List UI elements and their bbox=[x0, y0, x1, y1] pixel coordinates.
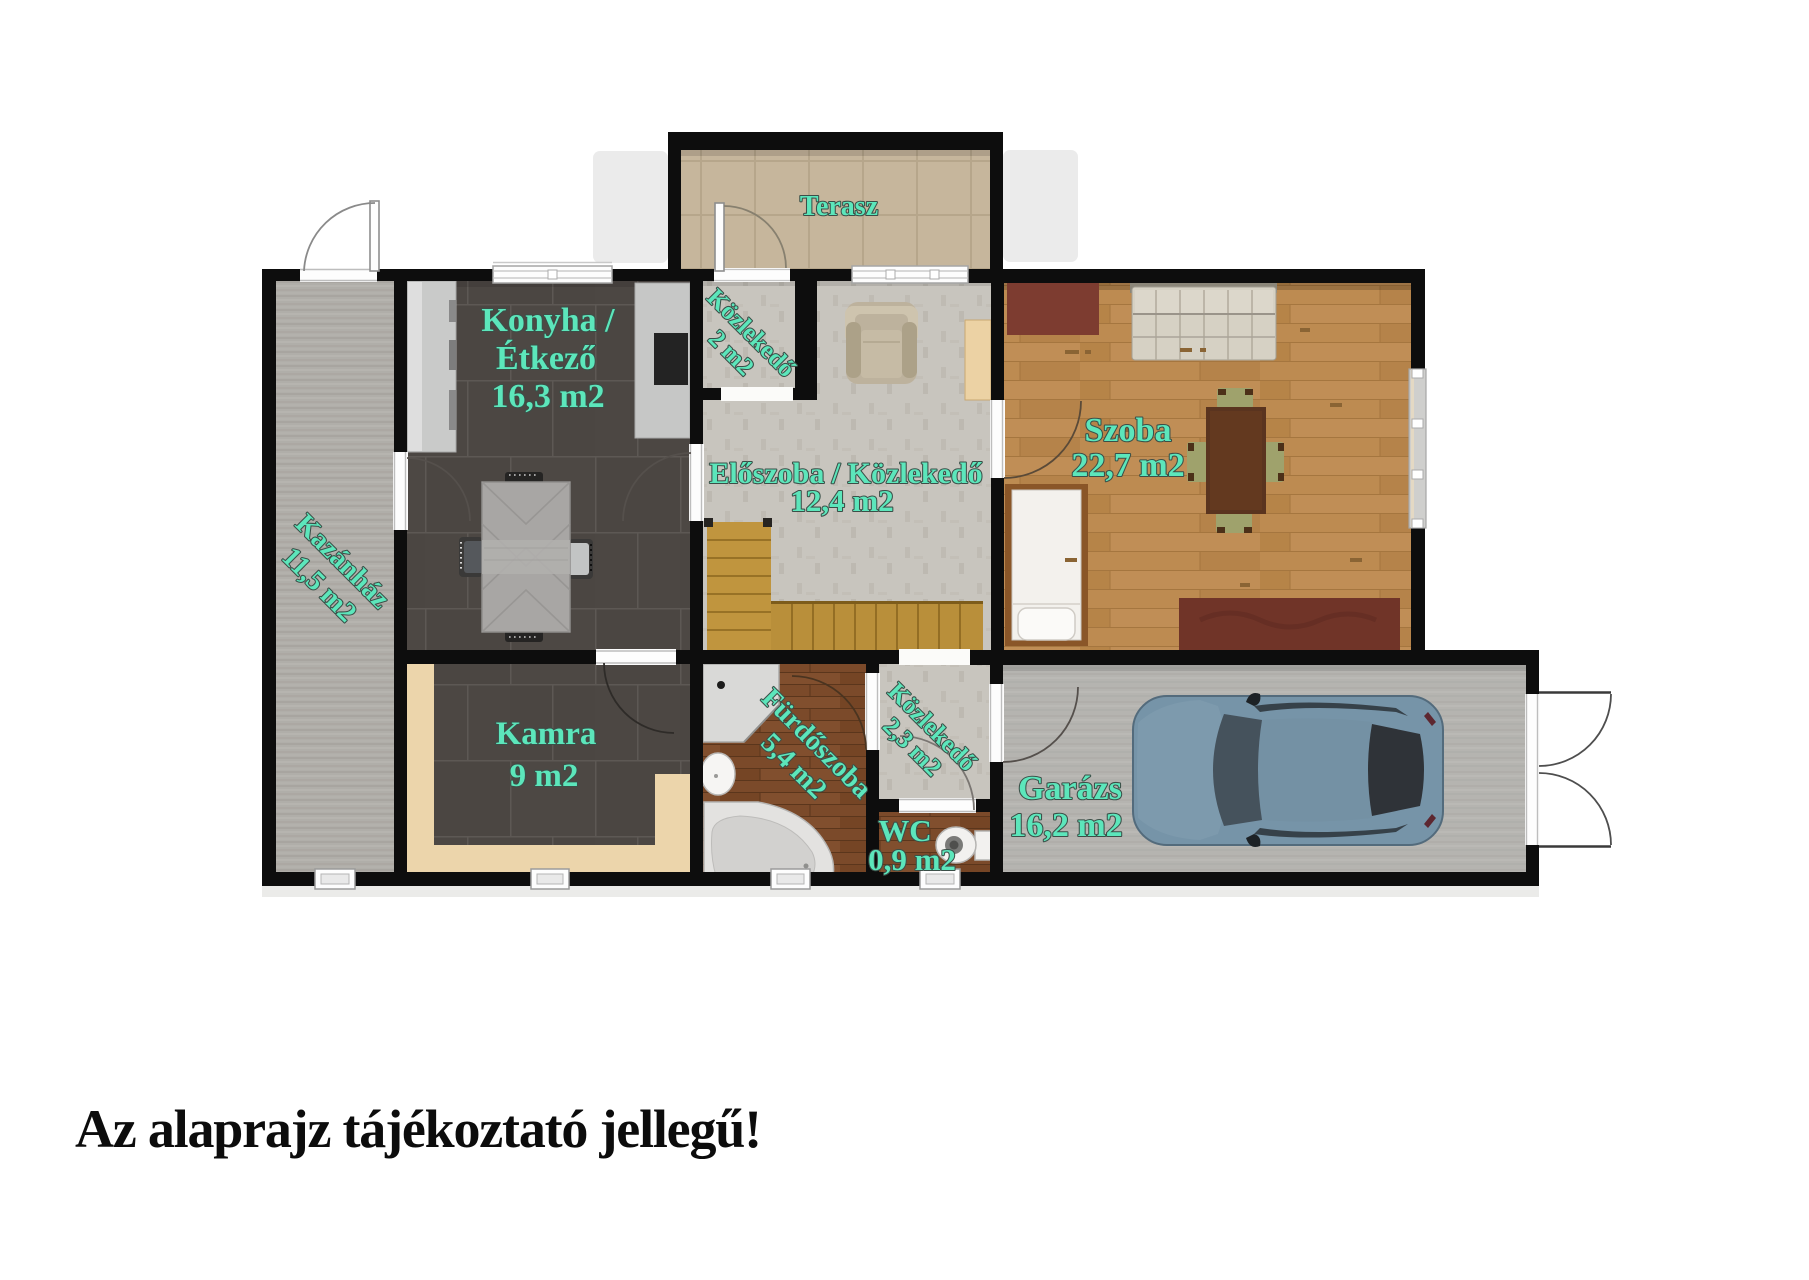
svg-text:Konyha /: Konyha / bbox=[481, 302, 615, 339]
svg-text:Étkező: Étkező bbox=[496, 340, 596, 377]
svg-text:0,9 m2: 0,9 m2 bbox=[868, 842, 956, 877]
svg-text:16,2 m2: 16,2 m2 bbox=[1009, 807, 1122, 844]
svg-text:16,3 m2: 16,3 m2 bbox=[491, 378, 604, 415]
svg-text:Garázs: Garázs bbox=[1018, 770, 1122, 807]
svg-text:Terasz: Terasz bbox=[800, 191, 878, 222]
svg-text:22,7 m2: 22,7 m2 bbox=[1071, 447, 1184, 484]
svg-text:Szoba: Szoba bbox=[1085, 412, 1172, 449]
svg-text:9 m2: 9 m2 bbox=[510, 758, 579, 794]
svg-text:12,4 m2: 12,4 m2 bbox=[790, 483, 893, 518]
svg-text:Kamra: Kamra bbox=[496, 716, 597, 752]
svg-text:Az alaprajz tájékoztató jelleg: Az alaprajz tájékoztató jellegű! bbox=[75, 1099, 761, 1159]
